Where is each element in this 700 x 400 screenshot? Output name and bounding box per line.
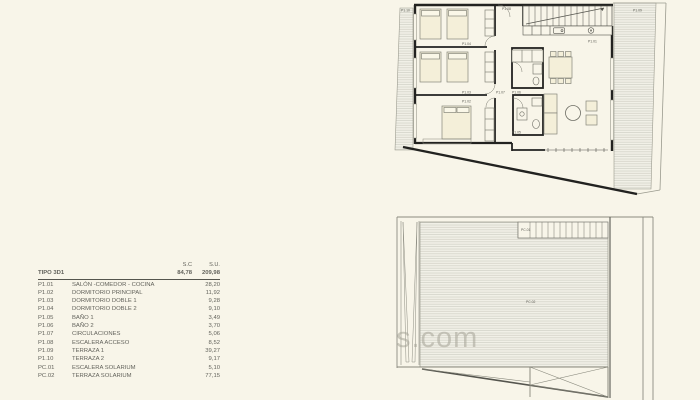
- row-name: DORMITORIO DOBLE 2: [72, 305, 162, 313]
- room-label-dorm-ppal: P1.02: [462, 100, 471, 104]
- row-su: 77,15: [192, 372, 220, 380]
- room-label-terraza-2: P1.10: [401, 9, 410, 13]
- row-code: P1.01: [38, 281, 72, 289]
- table-row: P1.02DORMITORIO PRINCIPAL11,92: [38, 289, 220, 297]
- solarium-plan: PC.01 PC.02: [390, 210, 700, 400]
- bathroom-fixtures: [517, 64, 542, 129]
- terrace-2-deck: [395, 8, 413, 150]
- room-label-circulac: P1.07: [496, 91, 505, 95]
- row-code: P1.02: [38, 289, 72, 297]
- row-su: 11,92: [192, 289, 220, 297]
- area-table: S.C S.U. TIPO 3D1 84,78 209,98 P1.01SALÓ…: [38, 261, 220, 380]
- row-sc: [162, 297, 192, 305]
- table-row: P1.01SALÓN -COMEDOR - COCINA28,20: [38, 281, 220, 289]
- table-row: P1.05BAÑO 13,49: [38, 314, 220, 322]
- type-title: TIPO 3D1: [38, 269, 162, 277]
- row-code: P1.05: [38, 314, 72, 322]
- room-label-salon: P1.01: [588, 40, 597, 44]
- room-label-bano1: P1.05: [512, 131, 521, 135]
- row-su: 3,70: [192, 322, 220, 330]
- room-label-terraza-1: P1.09: [633, 9, 642, 13]
- table-row: P1.09TERRAZA 139,27: [38, 347, 220, 355]
- row-su: 3,49: [192, 314, 220, 322]
- row-code: P1.06: [38, 322, 72, 330]
- row-sc: [162, 347, 192, 355]
- row-code: P1.08: [38, 339, 72, 347]
- row-sc: [162, 305, 192, 313]
- solarium-stairs: [518, 222, 608, 238]
- row-su: 9,10: [192, 305, 220, 313]
- row-code: P1.07: [38, 330, 72, 338]
- row-code: P1.09: [38, 347, 72, 355]
- row-name: TERRAZA 1: [72, 347, 162, 355]
- area-table-total-row: TIPO 3D1 84,78 209,98: [38, 269, 220, 279]
- total-sc: 84,78: [162, 269, 192, 277]
- room-label-dorm-doble2: P1.04: [462, 42, 471, 46]
- row-code: P1.03: [38, 297, 72, 305]
- row-name: DORMITORIO PRINCIPAL: [72, 289, 162, 297]
- row-sc: [162, 314, 192, 322]
- access-stairs: [523, 6, 612, 26]
- row-name: TERRAZA 2: [72, 355, 162, 363]
- row-name: CIRCULACIONES: [72, 330, 162, 338]
- area-table-header: S.C S.U.: [38, 261, 220, 269]
- room-label-dorm-doble1: P1.03: [462, 91, 471, 95]
- watermark: s.com: [396, 322, 478, 355]
- row-sc: [162, 322, 192, 330]
- row-su: 8,52: [192, 339, 220, 347]
- total-su: 209,98: [192, 269, 220, 277]
- sofa: [544, 94, 557, 134]
- armchair: [586, 115, 597, 125]
- table-row: PC.01ESCALERA SOLARIUM5,10: [38, 364, 220, 372]
- row-sc: [162, 289, 192, 297]
- row-name: BAÑO 2: [72, 322, 162, 330]
- row-code: PC.01: [38, 364, 72, 372]
- room-label-escalera: P1.08: [502, 7, 511, 11]
- room-label-bano2: P1.06: [512, 91, 521, 95]
- terrace-1-deck: [613, 3, 666, 194]
- row-su: 28,20: [192, 281, 220, 289]
- row-code: P1.10: [38, 355, 72, 363]
- armchair: [586, 101, 597, 111]
- table-row: P1.04DORMITORIO DOBLE 29,10: [38, 305, 220, 313]
- row-name: TERRAZA SOLARIUM: [72, 372, 162, 380]
- row-su: 5,10: [192, 364, 220, 372]
- row-name: ESCALERA SOLARIUM: [72, 364, 162, 372]
- table-row: P1.06BAÑO 23,70: [38, 322, 220, 330]
- row-name: DORMITORIO DOBLE 1: [72, 297, 162, 305]
- table-row: P1.03DORMITORIO DOBLE 19,28: [38, 297, 220, 305]
- area-table-body: P1.01SALÓN -COMEDOR - COCINA28,20P1.02DO…: [38, 281, 220, 381]
- row-name: BAÑO 1: [72, 314, 162, 322]
- table-row: P1.07CIRCULACIONES5,06: [38, 330, 220, 338]
- row-su: 9,17: [192, 355, 220, 363]
- room-label-escalera-solarium: PC.01: [521, 228, 531, 232]
- first-floor-plan: P1.10 P1.08 P1.09 P1.01 P1.04 P1.03 P1.0…: [390, 0, 700, 205]
- dining-table: [549, 52, 572, 84]
- col-header-su: S.U.: [192, 261, 220, 269]
- col-header-sc: S.C: [162, 261, 192, 269]
- row-sc: [162, 364, 192, 372]
- living-dining-furniture: [544, 52, 597, 135]
- room-label-terraza-solarium: PC.02: [526, 300, 536, 304]
- row-sc: [162, 355, 192, 363]
- kitchen-counter: [523, 26, 612, 35]
- row-code: P1.04: [38, 305, 72, 313]
- sloped-roof-edge: [397, 367, 608, 398]
- table-row: P1.08ESCALERA ACCESO8,52: [38, 339, 220, 347]
- row-code: PC.02: [38, 372, 72, 380]
- row-name: SALÓN -COMEDOR - COCINA: [72, 281, 162, 289]
- table-row: P1.10TERRAZA 29,17: [38, 355, 220, 363]
- row-su: 39,27: [192, 347, 220, 355]
- coffee-table: [566, 106, 581, 121]
- row-sc: [162, 281, 192, 289]
- row-name: ESCALERA ACCESO: [72, 339, 162, 347]
- table-row: PC.02TERRAZA SOLARIUM77,15: [38, 372, 220, 380]
- row-sc: [162, 330, 192, 338]
- row-sc: [162, 372, 192, 380]
- drawing-sheet: P1.10 P1.08 P1.09 P1.01 P1.04 P1.03 P1.0…: [0, 0, 700, 400]
- row-su: 5,06: [192, 330, 220, 338]
- row-su: 9,28: [192, 297, 220, 305]
- row-sc: [162, 339, 192, 347]
